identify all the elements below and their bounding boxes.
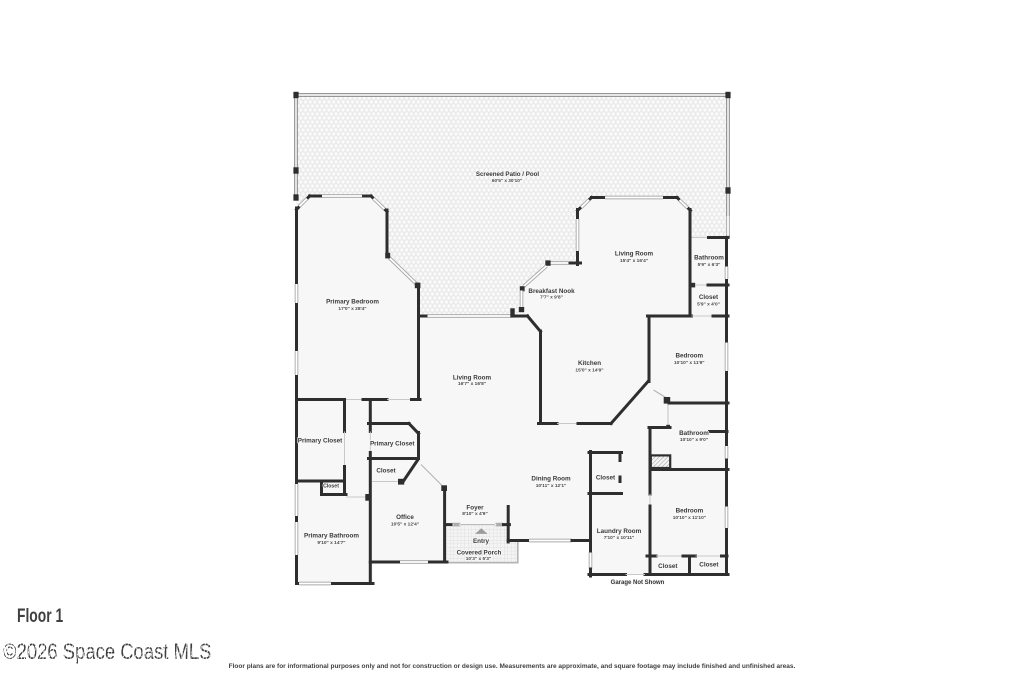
svg-text:Closet: Closet	[596, 474, 616, 481]
svg-text:Foyer: Foyer	[466, 505, 484, 512]
svg-text:Bathroom: Bathroom	[694, 255, 724, 262]
svg-text:Dining Room: Dining Room	[531, 475, 571, 482]
svg-text:10'10" x 11'10": 10'10" x 11'10"	[673, 515, 706, 521]
svg-text:10'10" x 11'9": 10'10" x 11'9"	[674, 360, 705, 366]
svg-text:5'9" x 4'0": 5'9" x 4'0"	[697, 301, 720, 307]
svg-text:Office: Office	[396, 514, 414, 521]
svg-text:Garage Not Shown: Garage Not Shown	[611, 580, 665, 586]
svg-text:Living Room: Living Room	[453, 374, 492, 381]
svg-text:10'11" x 12'1": 10'11" x 12'1"	[536, 483, 567, 489]
svg-text:15'0" x 14'9": 15'0" x 14'9"	[575, 367, 603, 373]
svg-text:Kitchen: Kitchen	[578, 360, 601, 367]
svg-text:10'10" x 9'0": 10'10" x 9'0"	[680, 437, 708, 443]
svg-text:Closet: Closet	[376, 467, 396, 474]
svg-text:8'10" x 4'9": 8'10" x 4'9"	[462, 511, 488, 517]
svg-text:Laundry Room: Laundry Room	[597, 528, 642, 535]
svg-text:7'7" x 9'8": 7'7" x 9'8"	[540, 294, 563, 300]
svg-text:5'9" x 6'3": 5'9" x 6'3"	[698, 262, 721, 268]
svg-text:Entry: Entry	[473, 538, 490, 545]
svg-text:Primary Bedroom: Primary Bedroom	[326, 298, 379, 305]
svg-text:Bedroom: Bedroom	[676, 508, 704, 515]
svg-text:10'3" x 5'3": 10'3" x 5'3"	[466, 556, 492, 562]
svg-text:Living Room: Living Room	[615, 251, 654, 258]
svg-text:Bathroom: Bathroom	[679, 430, 709, 437]
svg-text:Bedroom: Bedroom	[675, 353, 703, 360]
svg-text:Screened Patio / Pool: Screened Patio / Pool	[476, 171, 540, 178]
svg-text:Closet: Closet	[658, 563, 678, 570]
svg-text:Primary Closet: Primary Closet	[298, 438, 343, 445]
svg-text:Primary Bathroom: Primary Bathroom	[304, 533, 359, 540]
svg-text:Closet: Closet	[699, 294, 719, 301]
svg-text:Covered Porch: Covered Porch	[457, 549, 502, 556]
svg-text:Closet: Closet	[323, 484, 339, 490]
svg-text:Primary Closet: Primary Closet	[370, 441, 415, 448]
svg-text:16'7" x 16'8": 16'7" x 16'8"	[458, 381, 486, 387]
svg-text:Closet: Closet	[699, 562, 719, 569]
svg-text:17'0" x 28'4": 17'0" x 28'4"	[338, 306, 366, 312]
svg-text:9'10" x 14'7": 9'10" x 14'7"	[317, 540, 345, 546]
svg-text:15'4" x 16'4": 15'4" x 16'4"	[620, 258, 648, 264]
svg-text:7'10" x 10'11": 7'10" x 10'11"	[604, 535, 635, 541]
svg-text:Breakfast Nook: Breakfast Nook	[528, 288, 575, 295]
svg-text:10'5" x 12'4": 10'5" x 12'4"	[391, 522, 419, 528]
svg-text:60'5" x 30'10": 60'5" x 30'10"	[492, 178, 522, 183]
